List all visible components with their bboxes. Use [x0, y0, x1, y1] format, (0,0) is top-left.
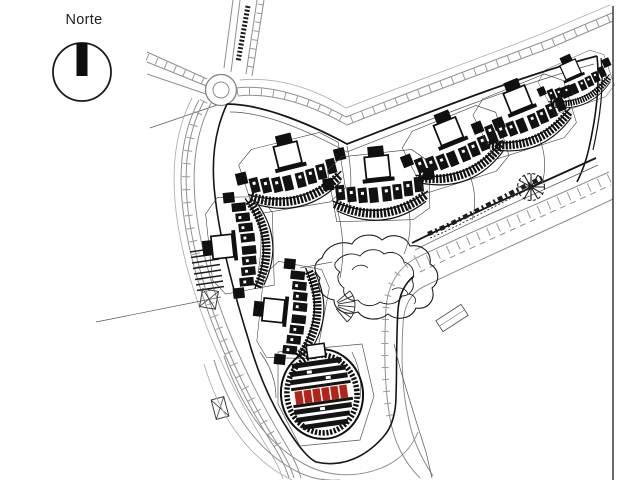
- north-road: [224, 0, 264, 76]
- southeast-boulevard: [412, 158, 613, 287]
- building-cluster-a: [228, 121, 355, 223]
- roundabout: [206, 75, 237, 106]
- parking-bay: [436, 304, 468, 331]
- road-marker-box: [200, 289, 219, 310]
- building-cluster-h-highlighted: [274, 339, 368, 444]
- median-hatch: [238, 6, 248, 62]
- site-plan-page: Norte: [0, 0, 640, 480]
- site-plan-drawing: [0, 0, 640, 480]
- boundary-leader-lines: [96, 297, 432, 478]
